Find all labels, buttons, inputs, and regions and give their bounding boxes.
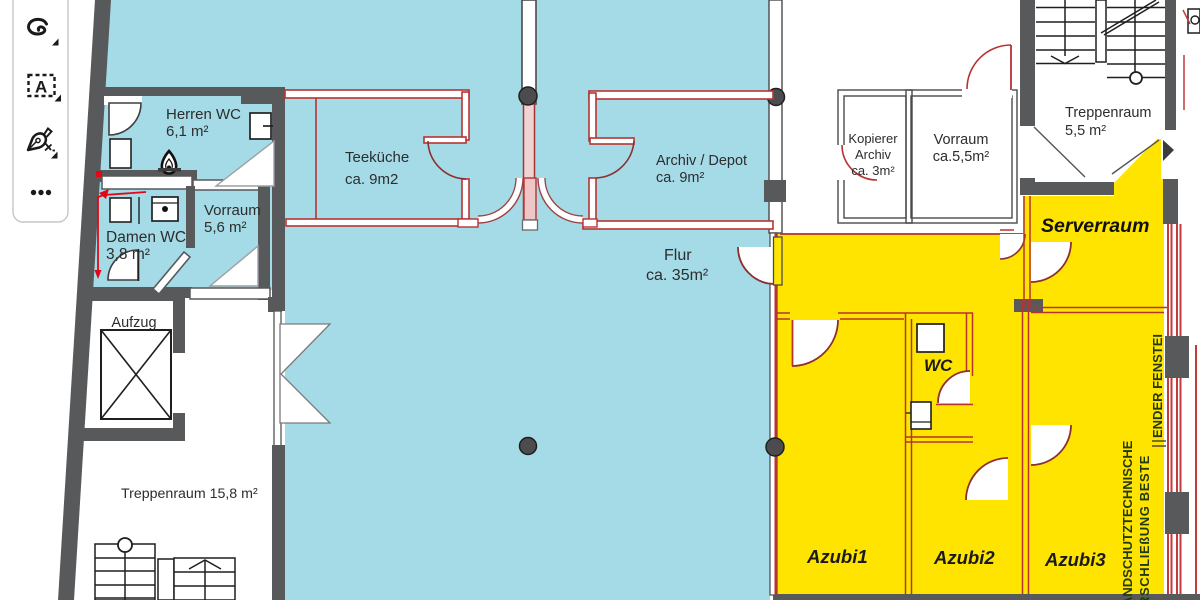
svg-text:5,5 m²: 5,5 m² <box>1065 123 1106 139</box>
svg-text:A: A <box>35 78 47 97</box>
svg-text:ca.5,5m²: ca.5,5m² <box>933 149 990 165</box>
svg-text:ca. 35m²: ca. 35m² <box>646 267 709 284</box>
svg-text:ENDER FENSTEI: ENDER FENSTEI <box>1150 334 1165 438</box>
svg-text:ca. 3m²: ca. 3m² <box>851 163 895 178</box>
svg-text:Vorraum: Vorraum <box>204 202 261 219</box>
svg-text:Archiv / Depot: Archiv / Depot <box>656 153 747 169</box>
svg-text:Aufzug: Aufzug <box>111 315 156 331</box>
svg-text:ANDSCHUTZTECHNISCHE: ANDSCHUTZTECHNISCHE <box>1120 440 1135 600</box>
svg-text:Kopierer: Kopierer <box>848 131 898 146</box>
svg-text:Serverraum: Serverraum <box>1041 215 1149 237</box>
svg-text:Treppenraum 15,8 m²: Treppenraum 15,8 m² <box>121 486 258 502</box>
svg-text:Archiv: Archiv <box>855 147 892 162</box>
svg-text:Azubi3: Azubi3 <box>1044 549 1106 570</box>
svg-text:ca. 9m²: ca. 9m² <box>656 170 705 186</box>
svg-text:Flur: Flur <box>664 247 692 264</box>
svg-text:ca. 9m2: ca. 9m2 <box>345 171 398 188</box>
svg-text:3,8 m²: 3,8 m² <box>106 246 150 263</box>
svg-text:WC: WC <box>924 356 953 375</box>
svg-text:Azubi1: Azubi1 <box>806 546 868 567</box>
svg-text:6,1 m²: 6,1 m² <box>166 123 209 140</box>
svg-text:5,6 m²: 5,6 m² <box>204 219 247 236</box>
svg-text:Teeküche: Teeküche <box>345 149 409 166</box>
svg-text:Treppenraum: Treppenraum <box>1065 105 1152 121</box>
svg-text:RSCHLIEßUNG BESTE: RSCHLIEßUNG BESTE <box>1137 455 1152 600</box>
svg-text:Damen WC: Damen WC <box>106 229 186 246</box>
svg-text:Azubi2: Azubi2 <box>933 547 995 568</box>
svg-text:Herren WC: Herren WC <box>166 106 241 123</box>
svg-text:Vorraum: Vorraum <box>934 132 989 148</box>
